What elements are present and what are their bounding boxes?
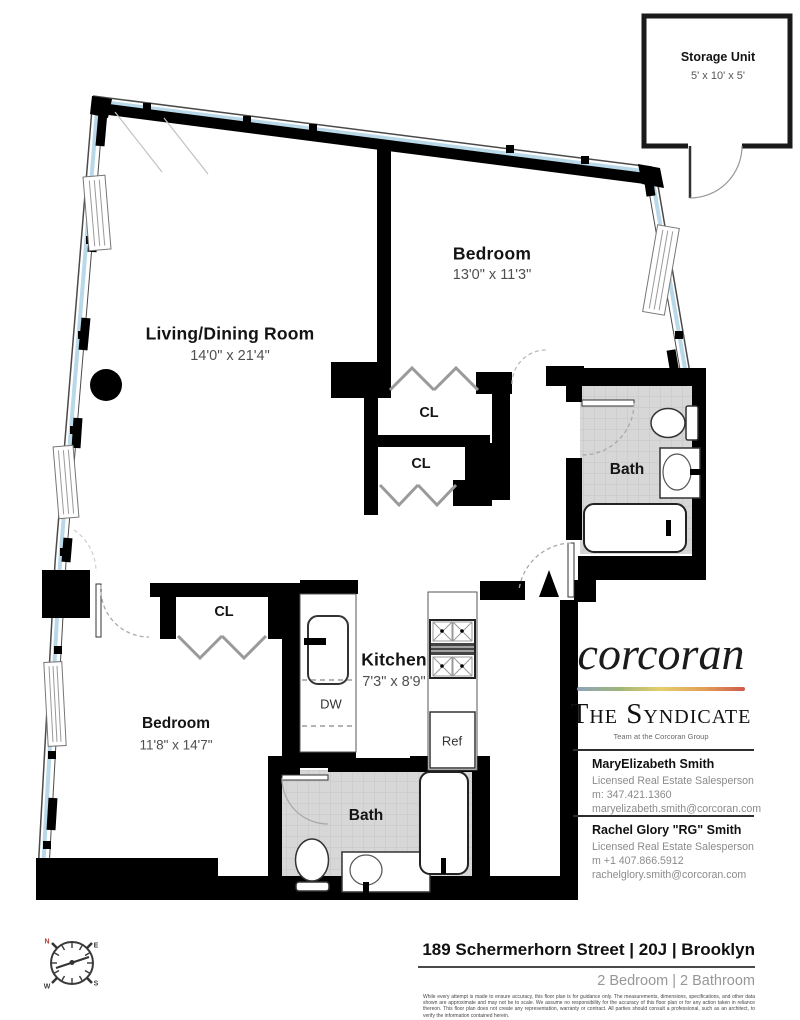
sink-faucet bbox=[690, 469, 704, 475]
agent-phone[interactable]: m: 347.421.1360 bbox=[592, 788, 760, 802]
agent-divider-2 bbox=[573, 815, 754, 817]
kitchen-dims: 7'3" x 8'9" bbox=[362, 674, 425, 690]
living-room-label: Living/Dining Room bbox=[146, 324, 315, 345]
compass-east-label: E bbox=[94, 943, 99, 950]
agent-email[interactable]: rachelglory.smith@corcoran.com bbox=[592, 868, 760, 882]
structural-column bbox=[90, 369, 122, 401]
footer-rule bbox=[418, 966, 755, 968]
bath1-label: Bath bbox=[610, 461, 644, 479]
kitchen-sink bbox=[308, 616, 348, 684]
stove bbox=[430, 620, 475, 678]
storage-unit-label: Storage Unit bbox=[681, 50, 755, 64]
team-name: The Syndicate bbox=[561, 699, 761, 729]
agent-title: Licensed Real Estate Salesperson bbox=[592, 840, 760, 854]
compass-west-label: W bbox=[44, 984, 51, 991]
bedroom2-door-swing bbox=[101, 585, 149, 637]
bedroom1-door-swing bbox=[512, 350, 546, 384]
bath2-label: Bath bbox=[349, 807, 383, 825]
entry-arrow-icon bbox=[539, 570, 559, 597]
sink-faucet bbox=[363, 882, 369, 895]
agent-card: MaryElizabeth Smith Licensed Real Estate… bbox=[592, 757, 760, 816]
refrigerator-label: Ref bbox=[442, 734, 462, 749]
unit-summary: 2 Bedroom | 2 Bathroom bbox=[597, 973, 755, 989]
compass-south-label: S bbox=[94, 981, 99, 988]
closet1-label: CL bbox=[419, 405, 438, 421]
toilet-tank bbox=[686, 406, 698, 440]
tub-faucet bbox=[666, 520, 671, 536]
compass-north-label: N bbox=[44, 939, 49, 946]
brand-gradient-bar bbox=[577, 687, 745, 691]
floor-plan-page: Storage Unit 5' x 10' x 5' Bedroom 13'0"… bbox=[0, 0, 800, 1020]
agent-divider-1 bbox=[573, 749, 754, 751]
bedroom2-dims: 11'8" x 14'7" bbox=[139, 738, 212, 753]
agent-card: Rachel Glory "RG" Smith Licensed Real Es… bbox=[592, 823, 760, 882]
disclaimer-text: While every attempt is made to ensure ac… bbox=[423, 994, 755, 1019]
agent-phone[interactable]: m +1 407.866.5912 bbox=[592, 854, 760, 868]
bedroom1-dims: 13'0" x 11'3" bbox=[453, 267, 531, 283]
storage-unit-outline bbox=[644, 16, 790, 198]
property-address: 189 Schermerhorn Street | 20J | Brooklyn bbox=[422, 940, 755, 960]
bath2-door-leaf bbox=[282, 775, 328, 780]
dishwasher-label: DW bbox=[320, 697, 342, 712]
closet3-label: CL bbox=[214, 604, 233, 620]
entry-door-leaf bbox=[568, 543, 574, 597]
toilet-bowl bbox=[296, 839, 329, 881]
team-tagline: Team at the Corcoran Group bbox=[563, 732, 759, 741]
kitchen-faucet bbox=[304, 638, 326, 645]
compass-icon bbox=[51, 942, 93, 984]
agent-name: Rachel Glory "RG" Smith bbox=[592, 823, 760, 837]
corcoran-logo: corcoran bbox=[563, 628, 759, 680]
toilet-bowl bbox=[651, 409, 685, 438]
bedroom2-label: Bedroom bbox=[142, 715, 210, 733]
bedroom1-label: Bedroom bbox=[453, 244, 531, 265]
bedroom2-door-leaf bbox=[96, 584, 101, 637]
living-room-dims: 14'0" x 21'4" bbox=[190, 348, 270, 364]
storage-door-swing bbox=[690, 146, 742, 198]
toilet-base bbox=[296, 882, 329, 891]
agent-name: MaryElizabeth Smith bbox=[592, 757, 760, 771]
bath1-door-leaf bbox=[582, 400, 634, 406]
agent-email[interactable]: maryelizabeth.smith@corcoran.com bbox=[592, 802, 760, 816]
agent-title: Licensed Real Estate Salesperson bbox=[592, 774, 760, 788]
tub-faucet bbox=[441, 858, 446, 874]
closet2-label: CL bbox=[411, 456, 430, 472]
storage-unit-dims: 5' x 10' x 5' bbox=[691, 70, 745, 82]
kitchen-label: Kitchen bbox=[361, 650, 427, 671]
